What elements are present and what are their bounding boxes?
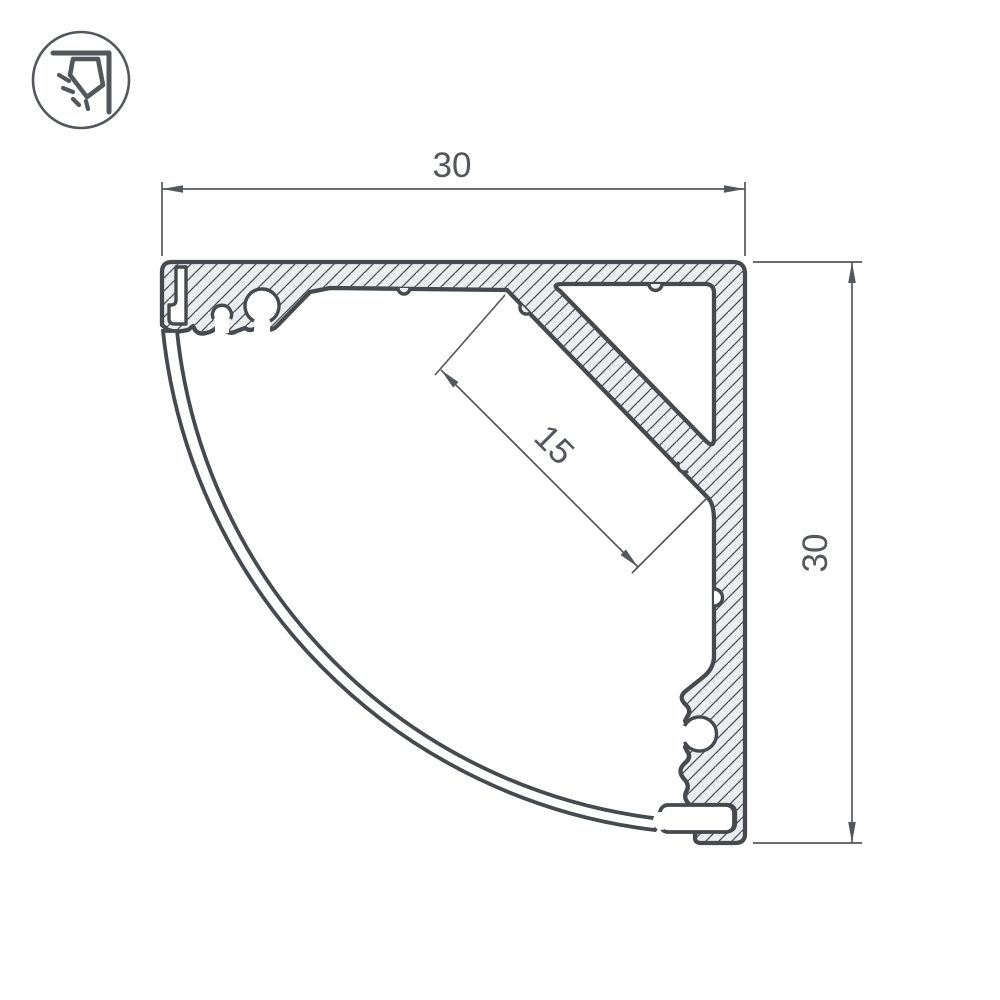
- lens-tab-junction: [653, 812, 669, 830]
- dimension-top-width: 30: [162, 146, 745, 256]
- arrowhead-right: [724, 185, 745, 193]
- lens-arc: [163, 331, 662, 830]
- arrowhead-left: [162, 185, 183, 193]
- arrowhead-bottom: [848, 822, 856, 843]
- dimension-label-right: 30: [796, 534, 835, 573]
- corner-lamp-icon: [53, 53, 109, 112]
- profile-cross-section-drawing: 30 30 15: [0, 0, 1000, 1000]
- dimension-annotations: 30 30 15: [162, 146, 862, 843]
- wall-notch: [714, 589, 723, 606]
- arrowhead-top: [848, 262, 856, 283]
- dimension-right-height: 30: [753, 262, 862, 843]
- drawing-canvas: 30 30 15: [0, 0, 1000, 1000]
- logo-badge: [33, 32, 129, 128]
- screw-channel-bottom: [674, 717, 717, 751]
- dimension-label-top: 30: [433, 146, 472, 185]
- notch-opening: [215, 319, 229, 333]
- lens-clip-tab: [660, 805, 734, 832]
